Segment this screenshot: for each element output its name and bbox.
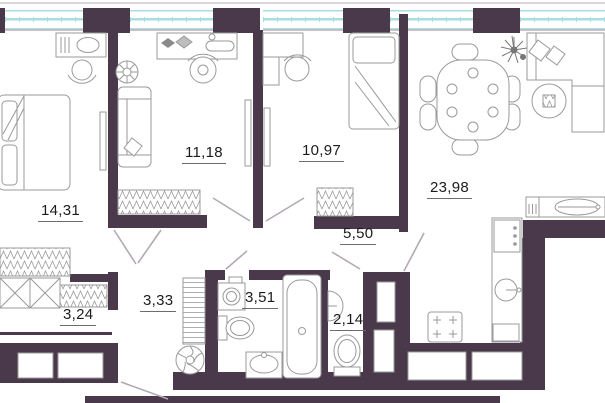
tv-panel [100, 112, 106, 170]
room-area-label-living-kitchen: 23,98 [427, 180, 472, 199]
dishwasher [493, 324, 519, 341]
window-sill [5, 29, 83, 31]
window [520, 10, 605, 30]
washing-machine [218, 277, 245, 310]
wall-segment [399, 14, 408, 232]
corner-sofa [527, 33, 604, 132]
wall-segment [249, 270, 330, 280]
wall-segment [108, 272, 118, 310]
desk [157, 33, 237, 59]
toilet [334, 335, 360, 376]
kitchen-sink [495, 279, 521, 301]
desk [263, 33, 303, 85]
closet-x [0, 278, 60, 308]
balcony-edge-line [0, 2, 605, 4]
room-area-label-bedroom-1: 14,31 [38, 203, 83, 222]
plant [501, 36, 527, 63]
wall-pillar [83, 8, 130, 33]
window-sill [263, 29, 343, 31]
office-chair [284, 55, 311, 81]
tv-panel [245, 100, 251, 166]
window-sill [520, 29, 605, 31]
double-bed [0, 95, 70, 190]
office-chair [188, 54, 218, 83]
sofa [118, 87, 151, 167]
wardrobe-rack [0, 248, 70, 276]
kitchen-counter [539, 197, 605, 217]
dressing-table [56, 33, 106, 57]
room-area-label-bathroom: 3,51 [242, 290, 278, 309]
stove [526, 197, 539, 217]
tv-panel [264, 108, 270, 166]
dining-table [420, 44, 520, 155]
wardrobe-rack [317, 188, 353, 216]
coffee-table [532, 84, 566, 118]
single-bed [349, 33, 399, 129]
hob [428, 312, 462, 342]
window-sill [130, 29, 213, 31]
floor-plan: 14,31 11,18 10,97 23,98 5,50 3,33 3,51 2… [0, 0, 605, 403]
wall-segment [523, 220, 605, 238]
wall-segment [108, 30, 118, 228]
wall-pillar [473, 8, 520, 33]
toilet [218, 316, 254, 340]
wardrobe-rack [118, 190, 200, 214]
room-area-label-bedroom-3: 10,97 [299, 143, 344, 162]
wall-segment [320, 272, 328, 380]
wall-segment [363, 272, 410, 385]
wall-pillar [343, 8, 390, 33]
room-area-label-hallway: 5,50 [340, 226, 376, 245]
wall-segment [70, 274, 112, 282]
wall-segment [520, 238, 545, 388]
room-area-label-wardrobe-room: 3,24 [60, 307, 96, 326]
room-area-label-wc: 2,14 [330, 312, 366, 331]
wall-segment [85, 396, 500, 403]
wall-segment [253, 30, 263, 228]
wall-pillar [0, 8, 5, 33]
wall-segment [112, 215, 207, 228]
window [5, 10, 83, 30]
wall-segment [173, 372, 405, 390]
plant [116, 61, 138, 83]
towel-ladder [183, 278, 205, 344]
wall-segment [0, 343, 118, 383]
window [130, 10, 213, 30]
room-area-label-bedroom-2: 11,18 [182, 145, 226, 164]
wall-segment [0, 332, 112, 335]
wall-segment [205, 270, 218, 380]
kitchen-counter [492, 218, 522, 342]
window [263, 10, 343, 30]
stool [68, 60, 96, 83]
wardrobe-rack [60, 285, 107, 307]
fridge [494, 220, 520, 252]
bathtub [283, 275, 321, 378]
room-area-label-corridor: 3,33 [140, 293, 176, 312]
wall-segment [218, 270, 225, 280]
exhaust-fan [176, 346, 204, 374]
